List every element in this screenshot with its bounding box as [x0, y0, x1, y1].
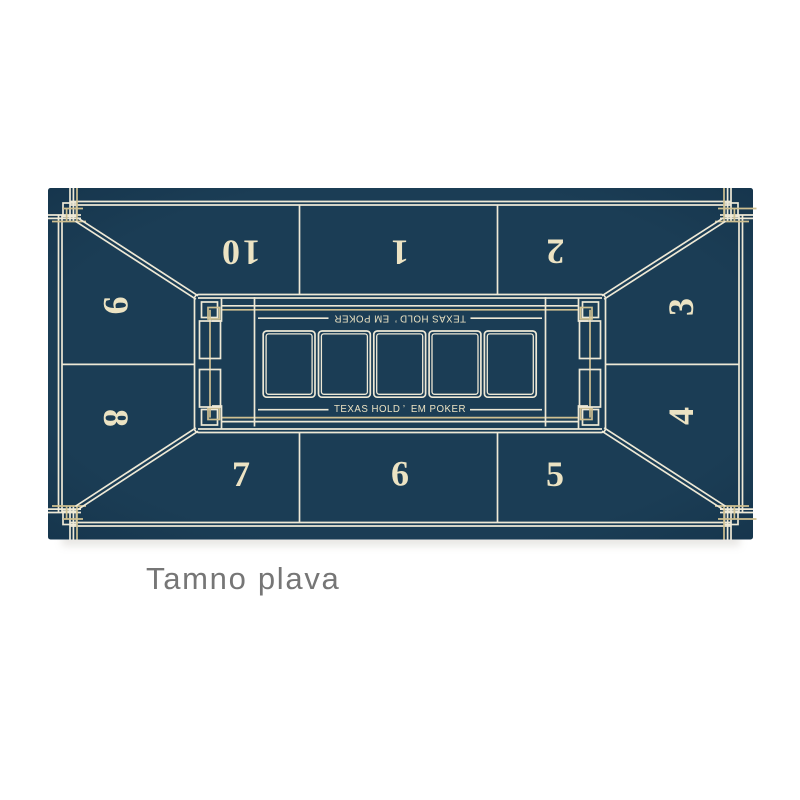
svg-text:7: 7 — [232, 454, 250, 494]
svg-text:TEXAS HOLD ’ EM POKER: TEXAS HOLD ’ EM POKER — [334, 313, 466, 324]
svg-text:Tamno plava: Tamno plava — [146, 561, 340, 596]
svg-text:6: 6 — [391, 454, 409, 494]
svg-text:9: 9 — [96, 297, 136, 315]
svg-text:TEXAS HOLD ’ EM POKER: TEXAS HOLD ’ EM POKER — [334, 404, 466, 415]
svg-text:3: 3 — [661, 298, 701, 316]
svg-text:10: 10 — [220, 233, 261, 273]
svg-text:5: 5 — [546, 454, 564, 494]
svg-text:2: 2 — [547, 232, 565, 272]
svg-text:8: 8 — [96, 409, 136, 427]
svg-text:4: 4 — [661, 407, 701, 425]
svg-text:1: 1 — [391, 233, 409, 273]
